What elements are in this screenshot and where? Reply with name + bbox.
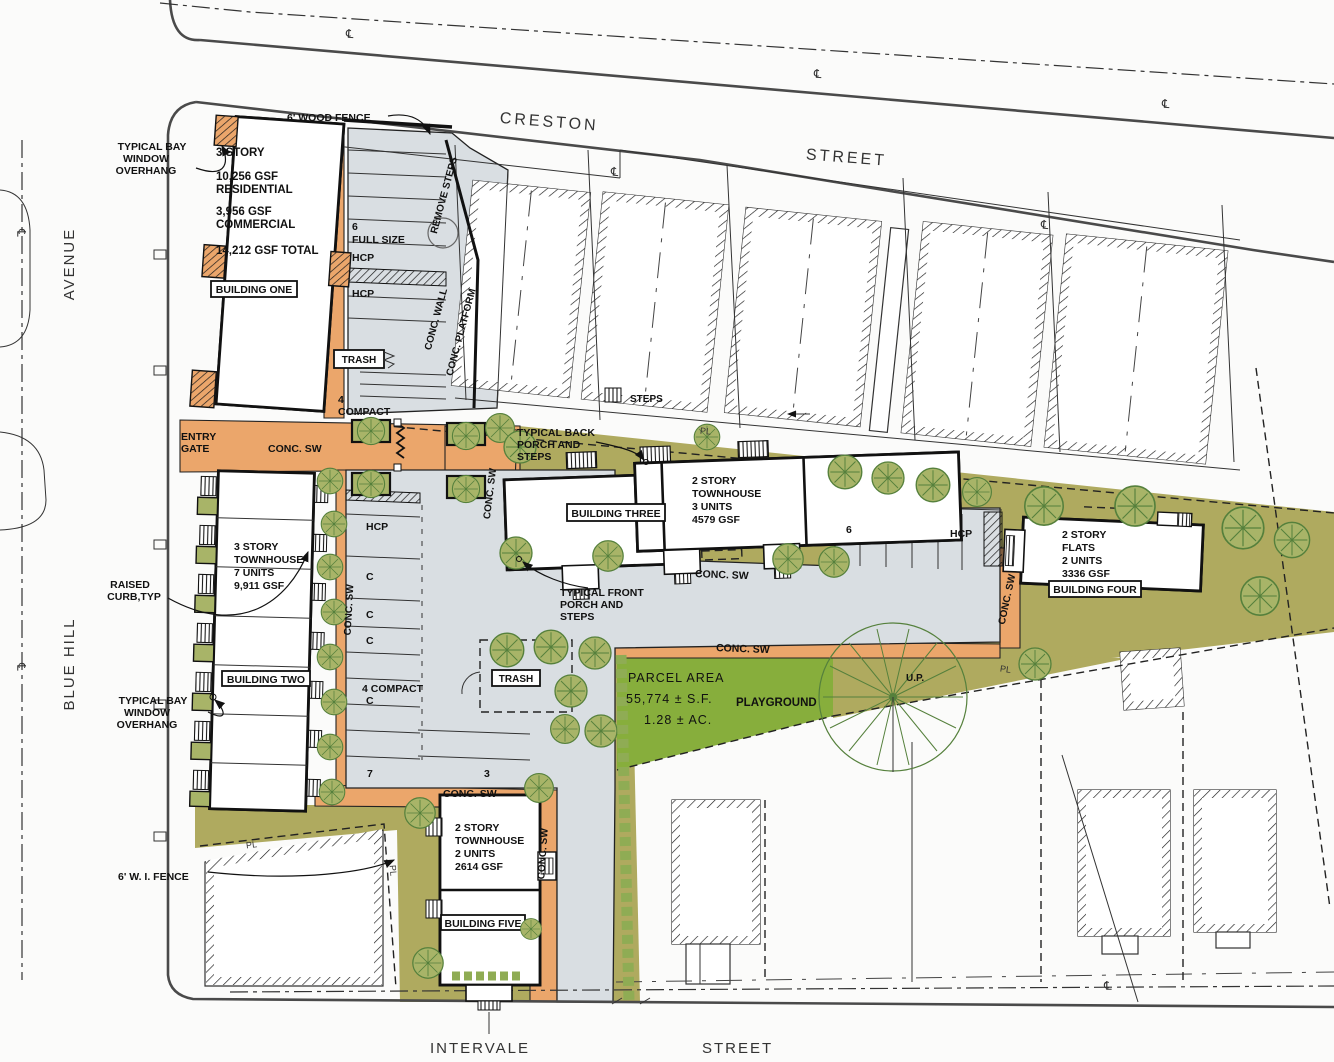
compact-stall-label: C bbox=[366, 609, 374, 621]
tree-icon bbox=[963, 478, 992, 507]
back-porch-note-1: TYPICAL BACK bbox=[517, 427, 595, 439]
tree-icon bbox=[357, 417, 384, 444]
building-one-gsf-res2: RESIDENTIAL bbox=[216, 184, 293, 196]
tree-icon bbox=[413, 948, 443, 978]
tree-icon bbox=[500, 537, 532, 569]
tree-icon bbox=[317, 468, 343, 494]
centerline-symbol: ℄ bbox=[812, 67, 822, 82]
bay-window-note-2: WINDOW bbox=[123, 153, 169, 165]
tree-icon bbox=[321, 511, 347, 537]
building-three-l4: 4579 GSF bbox=[692, 514, 740, 526]
conc-sw-label: CONC. SW bbox=[716, 642, 770, 656]
tree-icon bbox=[585, 715, 617, 747]
front-porch-note-2: PORCH AND bbox=[560, 599, 624, 611]
entry-gate-note-1: ENTRY bbox=[181, 431, 216, 443]
raised-curb-note-1: RAISED bbox=[110, 579, 150, 591]
building-two-l3: 7 UNITS bbox=[234, 567, 274, 579]
tree-icon bbox=[1222, 507, 1264, 549]
tree-icon bbox=[1025, 487, 1063, 525]
property-line-symbol: PL bbox=[999, 663, 1011, 674]
compact-count: 4 bbox=[338, 394, 344, 406]
tree-icon bbox=[452, 475, 479, 502]
building-two-l4: 9,911 GSF bbox=[234, 580, 285, 592]
centerline-symbol: ℄ bbox=[1039, 217, 1049, 232]
wood-fence-note: 6' WOOD FENCE bbox=[287, 112, 371, 124]
tree-icon bbox=[1274, 522, 1309, 557]
steps-note: STEPS bbox=[630, 394, 663, 405]
tree-icon bbox=[551, 715, 580, 744]
intervale-street-type: STREET bbox=[702, 1040, 773, 1057]
utility-pole-label: U.P. bbox=[906, 673, 924, 684]
compact-label: COMPACT bbox=[338, 406, 391, 418]
building-three-l2: TOWNHOUSE bbox=[692, 488, 761, 500]
tree-icon bbox=[555, 675, 587, 707]
building-two-l2: TOWNHOUSE bbox=[234, 554, 303, 566]
parcel-area-line3: 1.28 ± AC. bbox=[644, 713, 712, 727]
tree-icon bbox=[317, 554, 343, 580]
tree-icon bbox=[490, 633, 524, 667]
trash-label: TRASH bbox=[499, 674, 533, 685]
parcel-area-line2: 55,774 ± S.F. bbox=[626, 692, 713, 706]
tree-icon bbox=[405, 798, 435, 828]
building-one-gsf-com2: COMMERCIAL bbox=[216, 219, 295, 231]
compact-stall-label: C bbox=[366, 571, 374, 583]
hcp-stall-label: HCP bbox=[352, 252, 374, 264]
conc-sw-label: CONC. SW bbox=[443, 788, 497, 800]
tree-icon bbox=[593, 541, 623, 571]
conc-sw-label: CONC. SW bbox=[268, 443, 322, 455]
tree-icon bbox=[317, 734, 343, 760]
tree-icon bbox=[819, 547, 849, 577]
tree-icon bbox=[579, 637, 611, 669]
building-five-l3: 2 UNITS bbox=[455, 848, 495, 860]
hcp-stall-label: HCP bbox=[352, 288, 374, 300]
wi-fence-note: 6' W. I. FENCE bbox=[118, 871, 189, 883]
building-one-gsf-total: 14,212 GSF TOTAL bbox=[216, 245, 318, 257]
hcp-stall-label: HCP bbox=[950, 528, 972, 540]
building-four-l4: 3336 GSF bbox=[1062, 568, 1110, 580]
building-five-l4: 2614 GSF bbox=[455, 861, 503, 873]
north-stall-size: FULL SIZE bbox=[352, 234, 405, 246]
building-four-l3: 2 UNITS bbox=[1062, 555, 1102, 567]
building-three-label: BUILDING THREE bbox=[571, 508, 660, 520]
hcp-stall-label: HCP bbox=[366, 521, 388, 533]
playground-label: PLAYGROUND bbox=[736, 697, 817, 709]
four-compact-label: 4 COMPACT bbox=[362, 683, 424, 695]
centerline-symbol: ℄ bbox=[14, 228, 28, 237]
north-stall-count: 6 bbox=[352, 221, 358, 233]
building-three-l1: 2 STORY bbox=[692, 475, 736, 487]
tree-icon bbox=[317, 644, 343, 670]
entry-gate-note-2: GATE bbox=[181, 443, 209, 455]
stall-row-count-3: 3 bbox=[484, 768, 490, 780]
tree-icon bbox=[321, 689, 347, 715]
tree-icon bbox=[521, 919, 542, 940]
property-line-symbol: PL bbox=[388, 865, 399, 877]
property-line-symbol: PL bbox=[700, 426, 712, 437]
site-plan-page: 3 STORY 10,256 GSF RESIDENTIAL 3,956 GSF… bbox=[0, 0, 1334, 1062]
site-plan-drawing: 3 STORY 10,256 GSF RESIDENTIAL 3,956 GSF… bbox=[0, 0, 1334, 1062]
building-one-label: BUILDING ONE bbox=[216, 284, 292, 296]
bay-window-note2-3: OVERHANG bbox=[117, 719, 178, 731]
centerline-symbol: ℄ bbox=[344, 27, 354, 42]
building-five-l1: 2 STORY bbox=[455, 822, 499, 834]
centerline-symbol: ℄ bbox=[1103, 979, 1112, 993]
east-stall-count: 6 bbox=[846, 524, 852, 536]
building-four-l2: FLATS bbox=[1062, 542, 1095, 554]
back-porch-note-2: PORCH AND bbox=[517, 439, 581, 451]
back-porch-note-3: STEPS bbox=[517, 451, 551, 463]
tree-icon bbox=[872, 462, 904, 494]
tree-icon bbox=[1241, 577, 1279, 615]
tree-icon bbox=[828, 455, 862, 489]
tree-icon bbox=[534, 630, 568, 664]
building-five-l2: TOWNHOUSE bbox=[455, 835, 524, 847]
bay-window-note-1: TYPICAL BAY bbox=[118, 141, 187, 153]
tree-icon bbox=[525, 774, 554, 803]
building-two-l1: 3 STORY bbox=[234, 541, 278, 553]
tree-icon bbox=[1019, 648, 1051, 680]
tree-icon bbox=[452, 422, 479, 449]
raised-curb-note-2: CURB,TYP bbox=[107, 591, 161, 603]
centerline-symbol: ℄ bbox=[14, 662, 28, 671]
tree-icon bbox=[357, 470, 384, 497]
building-one-gsf-res1: 10,256 GSF bbox=[216, 171, 278, 183]
building-four-label: BUILDING FOUR bbox=[1053, 584, 1137, 596]
front-porch-note-3: STEPS bbox=[560, 611, 594, 623]
compact-stall-label: C bbox=[366, 635, 374, 647]
compact-stall-label: C bbox=[366, 695, 374, 707]
building-three-l3: 3 UNITS bbox=[692, 501, 732, 513]
stall-row-count-7: 7 bbox=[367, 768, 373, 780]
blue-hill-avenue-type: AVENUE bbox=[61, 228, 78, 301]
parcel-area-line1: PARCEL AREA bbox=[628, 671, 724, 685]
tree-icon bbox=[916, 468, 950, 502]
building-four-l1: 2 STORY bbox=[1062, 529, 1106, 541]
building-five-label: BUILDING FIVE bbox=[444, 918, 521, 930]
bay-window-note2-2: WINDOW bbox=[124, 707, 170, 719]
tree-icon bbox=[773, 544, 803, 574]
centerline-symbol: ℄ bbox=[609, 164, 619, 179]
trash-label: TRASH bbox=[342, 355, 376, 366]
front-porch-note-1: TYPICAL FRONT bbox=[560, 587, 644, 599]
intervale-street-name: INTERVALE bbox=[430, 1040, 530, 1057]
centerline-symbol: ℄ bbox=[1160, 97, 1170, 112]
building-one-gsf-com1: 3,956 GSF bbox=[216, 206, 272, 218]
conc-sw-label: CONC. SW bbox=[695, 568, 749, 582]
property-line-symbol: PL bbox=[245, 839, 257, 850]
bay-window-note2-1: TYPICAL BAY bbox=[119, 695, 188, 707]
tree-icon bbox=[1115, 486, 1155, 526]
blue-hill-avenue-name: BLUE HILL bbox=[61, 617, 78, 710]
bay-window-note-3: OVERHANG bbox=[116, 165, 177, 177]
building-two-label: BUILDING TWO bbox=[227, 674, 305, 686]
tree-icon bbox=[319, 779, 345, 805]
